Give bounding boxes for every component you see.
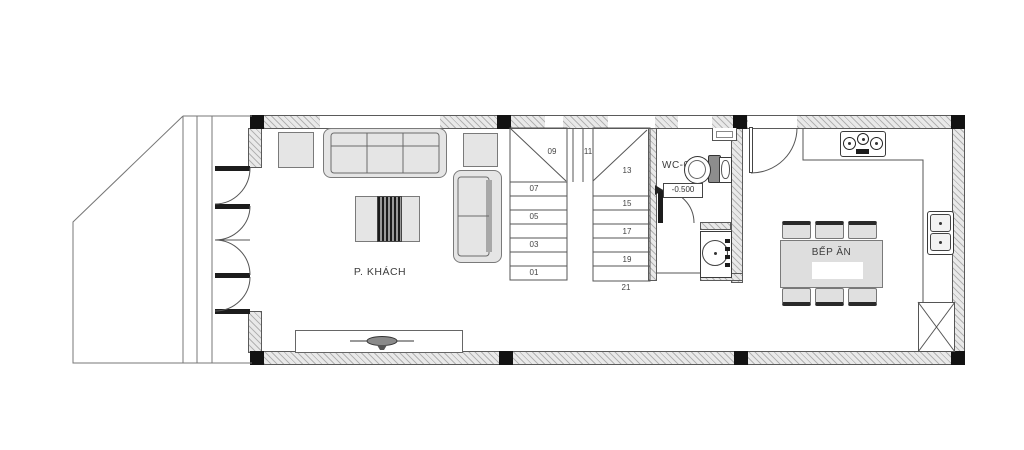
column bbox=[250, 115, 264, 129]
side-table-right bbox=[463, 133, 498, 167]
level-marker-flag bbox=[655, 185, 663, 195]
column bbox=[499, 351, 513, 365]
washing-machine-controls bbox=[725, 247, 730, 251]
column bbox=[734, 351, 748, 365]
stair-tread-number: 03 bbox=[524, 240, 544, 249]
column bbox=[497, 115, 511, 129]
column bbox=[951, 351, 965, 365]
floor-plan-canvas: WC-01 bbox=[0, 0, 1024, 450]
dining-chair bbox=[782, 221, 811, 239]
stair-tread-number: 05 bbox=[524, 212, 544, 221]
wash-basin-bowl bbox=[721, 160, 730, 179]
wall-wc-kitchen bbox=[731, 128, 743, 283]
living-room-label: P. KHÁCH bbox=[335, 266, 425, 278]
door-opening-kitchen bbox=[748, 115, 797, 129]
dining-chair bbox=[815, 288, 844, 306]
sink-drain bbox=[939, 241, 942, 244]
folding-door-arcs bbox=[215, 168, 250, 311]
stair-tread-number: 15 bbox=[617, 199, 637, 208]
stove-burner-center bbox=[875, 142, 878, 145]
window-top-stair-2 bbox=[608, 115, 655, 129]
sofa-2-seat bbox=[453, 170, 502, 263]
wall-facade-stub-lower bbox=[248, 311, 262, 353]
level-marker: -0.500 bbox=[663, 183, 703, 198]
stair-tread-number: 09 bbox=[542, 147, 562, 156]
side-table-left bbox=[278, 132, 314, 168]
wall-facade-stub-upper bbox=[248, 128, 262, 168]
column bbox=[951, 115, 965, 129]
sofa-3-seat bbox=[323, 128, 447, 178]
stair-tread-number: 13 bbox=[617, 166, 637, 175]
dining-table-runner bbox=[812, 262, 863, 279]
wall-niche-inner bbox=[716, 131, 733, 138]
washing-machine-controls bbox=[725, 255, 730, 259]
lot-boundary bbox=[73, 116, 252, 363]
dining-chair bbox=[815, 221, 844, 239]
stove-burner-center bbox=[862, 138, 865, 141]
window-top-stair-1 bbox=[545, 115, 563, 129]
wall-wc-inner bbox=[700, 222, 731, 230]
dining-chair bbox=[848, 288, 877, 306]
toilet-bowl-inner bbox=[688, 160, 706, 179]
stove-grill bbox=[856, 149, 869, 154]
folding-door-leaf bbox=[215, 166, 250, 171]
folding-door-leaf bbox=[215, 204, 250, 209]
column bbox=[250, 351, 264, 365]
wall-bottom bbox=[250, 351, 965, 365]
coffee-table-runner bbox=[377, 196, 402, 242]
column bbox=[733, 115, 747, 129]
sink-drain bbox=[939, 222, 942, 225]
dining-chair bbox=[848, 221, 877, 239]
stair-tread-number: 19 bbox=[617, 255, 637, 264]
dining-chair bbox=[782, 288, 811, 306]
washing-machine-drum-center bbox=[714, 252, 717, 255]
window-top-wc bbox=[678, 115, 712, 129]
stair-tread-number: 11 bbox=[578, 147, 598, 156]
kitchen-label: BẾP ĂN bbox=[780, 247, 883, 258]
window-top-living bbox=[320, 115, 440, 129]
wall-stair-wc bbox=[648, 128, 657, 281]
washing-machine-controls bbox=[725, 263, 730, 267]
stair-tread-number: 17 bbox=[617, 227, 637, 236]
stair-tread-number: 21 bbox=[616, 283, 636, 292]
folding-door-leaf bbox=[215, 273, 250, 278]
washing-machine-controls bbox=[725, 239, 730, 243]
stove-burner-center bbox=[848, 142, 851, 145]
tv-cabinet bbox=[295, 330, 463, 353]
kitchen-door-leaf bbox=[749, 127, 753, 173]
stair-tread-number: 07 bbox=[524, 184, 544, 193]
service-shaft bbox=[918, 302, 955, 352]
folding-door-leaf bbox=[215, 309, 250, 314]
stair-tread-number: 01 bbox=[524, 268, 544, 277]
